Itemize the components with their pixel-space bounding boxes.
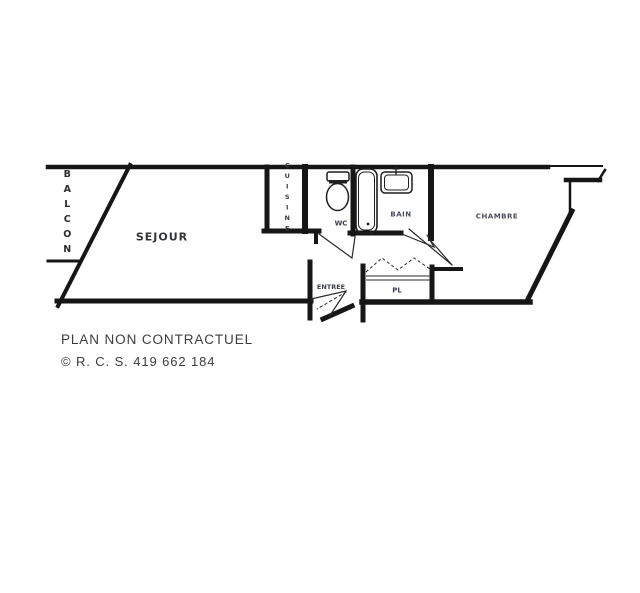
outer-walls xyxy=(48,166,605,302)
room-label-entree: ENTREE xyxy=(317,284,345,291)
room-label-bain: BAIN xyxy=(390,212,411,219)
room-label-wc: WC xyxy=(335,221,348,228)
closet-folding-door xyxy=(366,258,430,280)
room-label-placard: PL xyxy=(392,288,402,295)
room-label-chambre: CHAMBRE xyxy=(476,214,518,221)
floorplan-page: BALCON SEJOUR CUISINE WC BAIN CHAMBRE EN… xyxy=(0,0,640,593)
floorplan-drawing xyxy=(0,0,640,593)
toilet-icon xyxy=(327,172,350,211)
copyright-text: © R. C. S. 419 662 184 xyxy=(61,354,215,369)
balcony-walls xyxy=(48,165,130,306)
sink-icon xyxy=(381,166,412,193)
room-label-sejour: SEJOUR xyxy=(136,232,188,243)
room-label-cuisine: CUISINE xyxy=(284,161,291,235)
room-label-balcon: BALCON xyxy=(62,169,72,259)
bathtub-icon xyxy=(356,169,377,233)
bedroom-door-leaf xyxy=(431,241,452,265)
plan-disclaimer-text: PLAN NON CONTRACTUEL xyxy=(61,332,253,347)
wc-door-swing xyxy=(319,234,355,258)
